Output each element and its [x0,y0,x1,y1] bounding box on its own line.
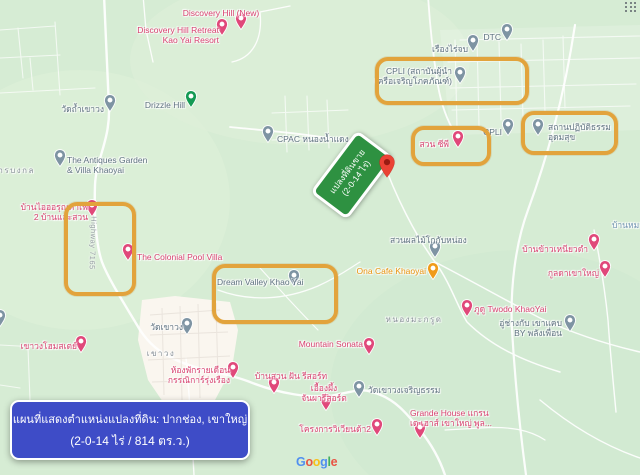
antiques-garden-label[interactable]: The Antiques Garden& Villa Khaoyai [67,155,147,175]
colonial-pool-villa-label[interactable]: The Colonial Pool Villa [137,252,222,262]
ban-mak-label[interactable]: บ้านหมาก [612,220,640,230]
monthly-room-kannika-label[interactable]: ห้องพักรายเดือนกรรณิการ์รุ่งเรือง [168,365,230,385]
mountain-sonata-label[interactable]: Mountain Sonata [299,339,363,349]
antiques-garden-marker[interactable] [54,149,67,172]
property-pin[interactable] [379,154,396,183]
discovery-hill-new-label[interactable]: Discovery Hill (New) [183,8,260,18]
dtc-label[interactable]: DTC [484,32,501,42]
dtc-marker[interactable] [501,23,514,46]
rueang-rai-job-marker[interactable] [467,34,480,57]
wat-tham-khao-wong-label[interactable]: วัดถ้ำเขาวง [61,104,104,114]
highlight-cpli-institute [375,57,529,105]
ona-cafe-marker[interactable] [427,262,440,285]
drizzle-hill-marker[interactable] [185,90,198,113]
khao-wong-homestay-label[interactable]: เขาวงโฮมสเตย์ [21,341,77,351]
au-chang-khao-kaep-label[interactable]: อู่ช่างกับ เขาแคบBY พลังเพื่อน [499,318,562,338]
drizzle-hill-label[interactable]: Drizzle Hill [145,100,185,110]
caption-line1: แผนที่แสดงตำแหน่งแปลงที่ดิน: ปากช่อง, เข… [13,410,247,428]
grande-house-label[interactable]: Grande House แกรนเด เฮาส์ เขาใหญ่ พูล... [410,408,492,428]
wat-khao-wong-charoen-tham-marker[interactable] [353,380,366,403]
cpac-nong-nam-daeng-label[interactable]: CPAC หนองน้ำแดง [277,134,349,144]
apps-grid-icon[interactable] [625,2,637,12]
apps-grid-dot [630,2,632,4]
vivienda-2-label[interactable]: โครงการวิเวียนด้า2 [299,424,371,434]
google-logo: Google [296,455,337,469]
apps-grid-dot [625,2,627,4]
apps-grid-dot [630,6,632,8]
ban-khao-niao-dam-label[interactable]: บ้านข้าวเหนียวดำ [522,244,588,254]
mountain-sonata-marker[interactable] [363,337,376,360]
twodo-khaoyai-label[interactable]: ภูดู Twodo KhaoYai [474,304,546,314]
baan-suan-fun-resort-label[interactable]: บ้านสวน ฝัน รีสอร์ท [255,371,327,381]
map-screenshot: Discovery Hill (New) Discovery Hill Retr… [0,0,640,475]
khao-wong-area-label[interactable]: เขาวง [147,349,176,358]
apps-grid-dot [634,10,636,12]
apps-grid-dot [625,10,627,12]
highlight-suan-cp [411,126,491,166]
highlight-highway [64,202,136,296]
google-logo-letter: o [305,455,312,469]
apps-grid-dot [634,6,636,8]
ueang-phueng-chanpha-label[interactable]: เอื้องผึ้งจันผารีสอร์ต [301,383,347,403]
google-logo-letter: e [331,455,338,469]
apps-grid-dot [634,2,636,4]
rueang-rai-job-label[interactable]: เรืองไร่จบ [432,44,468,54]
au-chang-khao-kaep-marker[interactable] [564,314,577,337]
nong-makrut-area-label[interactable]: หนองมะกรูด [386,315,443,324]
discovery-hill-retreat-label[interactable]: Discovery Hill RetreatKao Yai Resort [137,25,219,45]
wat-tham-khao-wong-marker[interactable] [104,94,117,117]
fruit-orchard-label[interactable]: สวนผลไม้โกกับหน่อง [390,235,467,245]
apps-grid-dot [625,6,627,8]
edge-partial-marker[interactable] [0,309,7,332]
twodo-khaoyai-marker[interactable] [461,299,474,322]
ban-khao-niao-dam-marker[interactable] [588,233,601,256]
kulada-khao-yai-label[interactable]: กูลดาเขาใหญ่ [548,268,599,278]
ona-cafe-label[interactable]: Ona Cafe Khaoyai [357,266,426,276]
cpac-nong-nam-daeng-marker[interactable] [262,125,275,148]
vivienda-2-marker[interactable] [371,418,384,441]
kulada-khao-yai-marker[interactable] [599,260,612,283]
wat-khao-wong-label[interactable]: วัดเขาวง [150,322,183,332]
caption-box: แผนที่แสดงตำแหน่งแปลงที่ดิน: ปากช่อง, เข… [10,400,250,460]
wat-khao-wong-charoen-tham-label[interactable]: วัดเขาวงเจริญธรรม [368,385,440,395]
apps-grid-dot [630,10,632,12]
cpli-marker[interactable] [502,118,515,141]
than-bong-kon-area-label[interactable]: ธารบงกล [0,166,35,175]
caption-line2: (2-0-14 ไร่ / 814 ตร.ว.) [70,432,190,451]
highlight-meditation [521,111,618,155]
highlight-dream-valley [212,264,338,324]
